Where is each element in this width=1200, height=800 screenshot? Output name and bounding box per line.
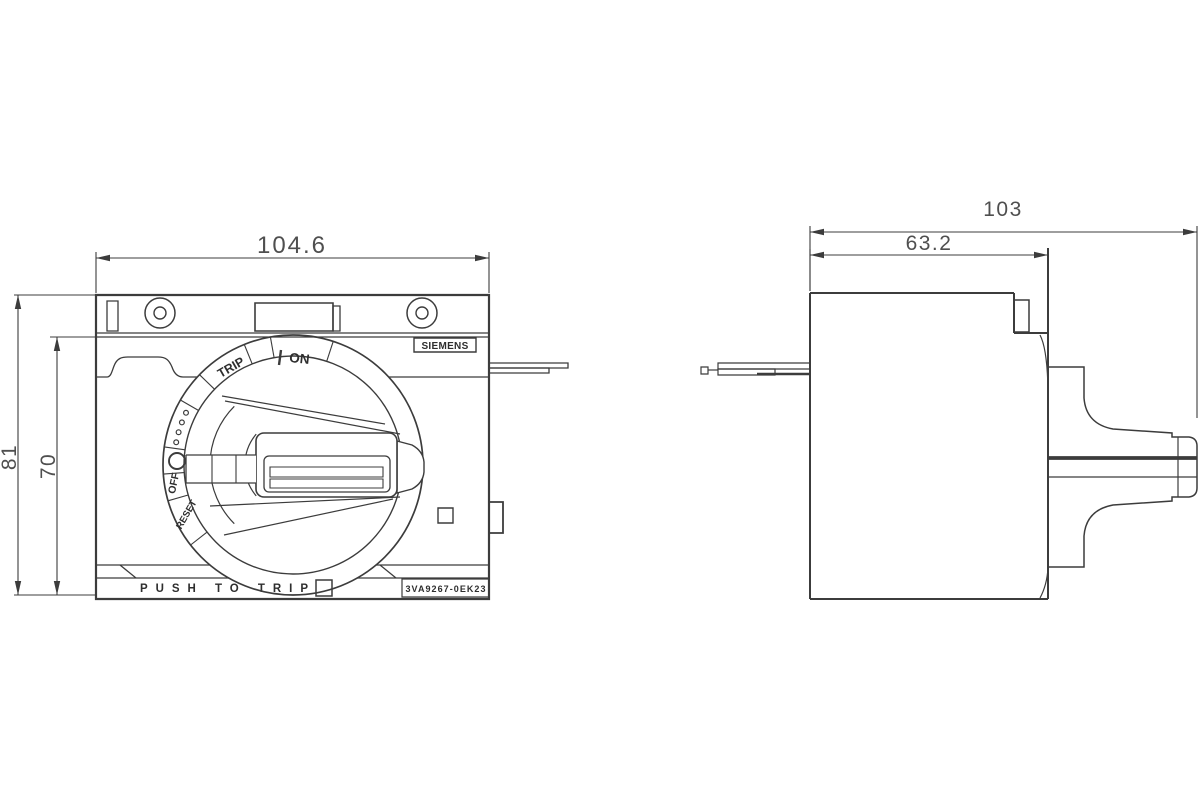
dim-front-width: 104.6	[96, 232, 489, 293]
bottom-strip	[96, 565, 489, 578]
technical-drawing-page: SIEMENS PUSH TO TRIP 3VA9267-0EK23	[0, 0, 1200, 800]
dim-front-height-value: 81	[0, 444, 21, 470]
on-label: ON	[289, 350, 311, 367]
side-tab-front	[489, 363, 568, 373]
dial-dots	[174, 410, 189, 444]
dim-front-width-value: 104.6	[257, 232, 327, 259]
dimensions: 104.6 81 70 103	[0, 198, 1197, 595]
dim-side-body: 63.2	[810, 232, 1048, 291]
push-to-trip-label: PUSH TO TRIP	[140, 583, 308, 595]
dim-side-body-value: 63.2	[906, 232, 953, 255]
handle-body	[256, 433, 397, 497]
top-window	[255, 303, 333, 331]
brand-label: SIEMENS	[421, 341, 468, 352]
dim-front-height: 81	[0, 295, 96, 595]
side-tab-side	[701, 363, 810, 375]
off-symbol-circle	[169, 453, 185, 469]
dim-front-height-inner-value: 70	[37, 453, 60, 479]
brand-plate: SIEMENS	[414, 338, 476, 352]
front-view: SIEMENS PUSH TO TRIP 3VA9267-0EK23	[96, 295, 568, 599]
side-view	[701, 248, 1197, 599]
dim-side-total: 103	[810, 198, 1197, 418]
front-small-square	[438, 508, 453, 523]
side-top-tab	[1014, 300, 1029, 332]
side-corner-curve-bottom	[1040, 568, 1048, 598]
part-number-plate: 3VA9267-0EK23	[402, 579, 489, 597]
top-window-bar	[333, 306, 340, 331]
part-number-label: 3VA9267-0EK23	[406, 584, 486, 594]
handle-tip	[397, 441, 424, 493]
off-label: OFF	[166, 471, 182, 495]
handle-stem	[186, 455, 256, 483]
push-to-trip-button	[316, 580, 332, 596]
screw-hole-right	[407, 298, 437, 328]
dim-side-total-value: 103	[983, 198, 1023, 221]
on-symbol-bar	[279, 350, 281, 365]
drawing-canvas: SIEMENS PUSH TO TRIP 3VA9267-0EK23	[0, 0, 1200, 800]
screw-hole-left	[145, 298, 175, 328]
side-corner-curve-top	[1040, 335, 1048, 388]
mounting-slot	[107, 301, 118, 331]
left-moulding	[96, 357, 197, 377]
right-latch	[489, 502, 503, 533]
rotary-dial: TRIP ON OFF RESET	[163, 335, 424, 595]
handle-shaft-profile	[1048, 367, 1197, 567]
shaft-tip	[1178, 437, 1197, 497]
side-body-outline	[810, 248, 1048, 599]
rotary-handle-grip	[186, 433, 424, 497]
dim-front-height-inner: 70	[37, 337, 96, 595]
